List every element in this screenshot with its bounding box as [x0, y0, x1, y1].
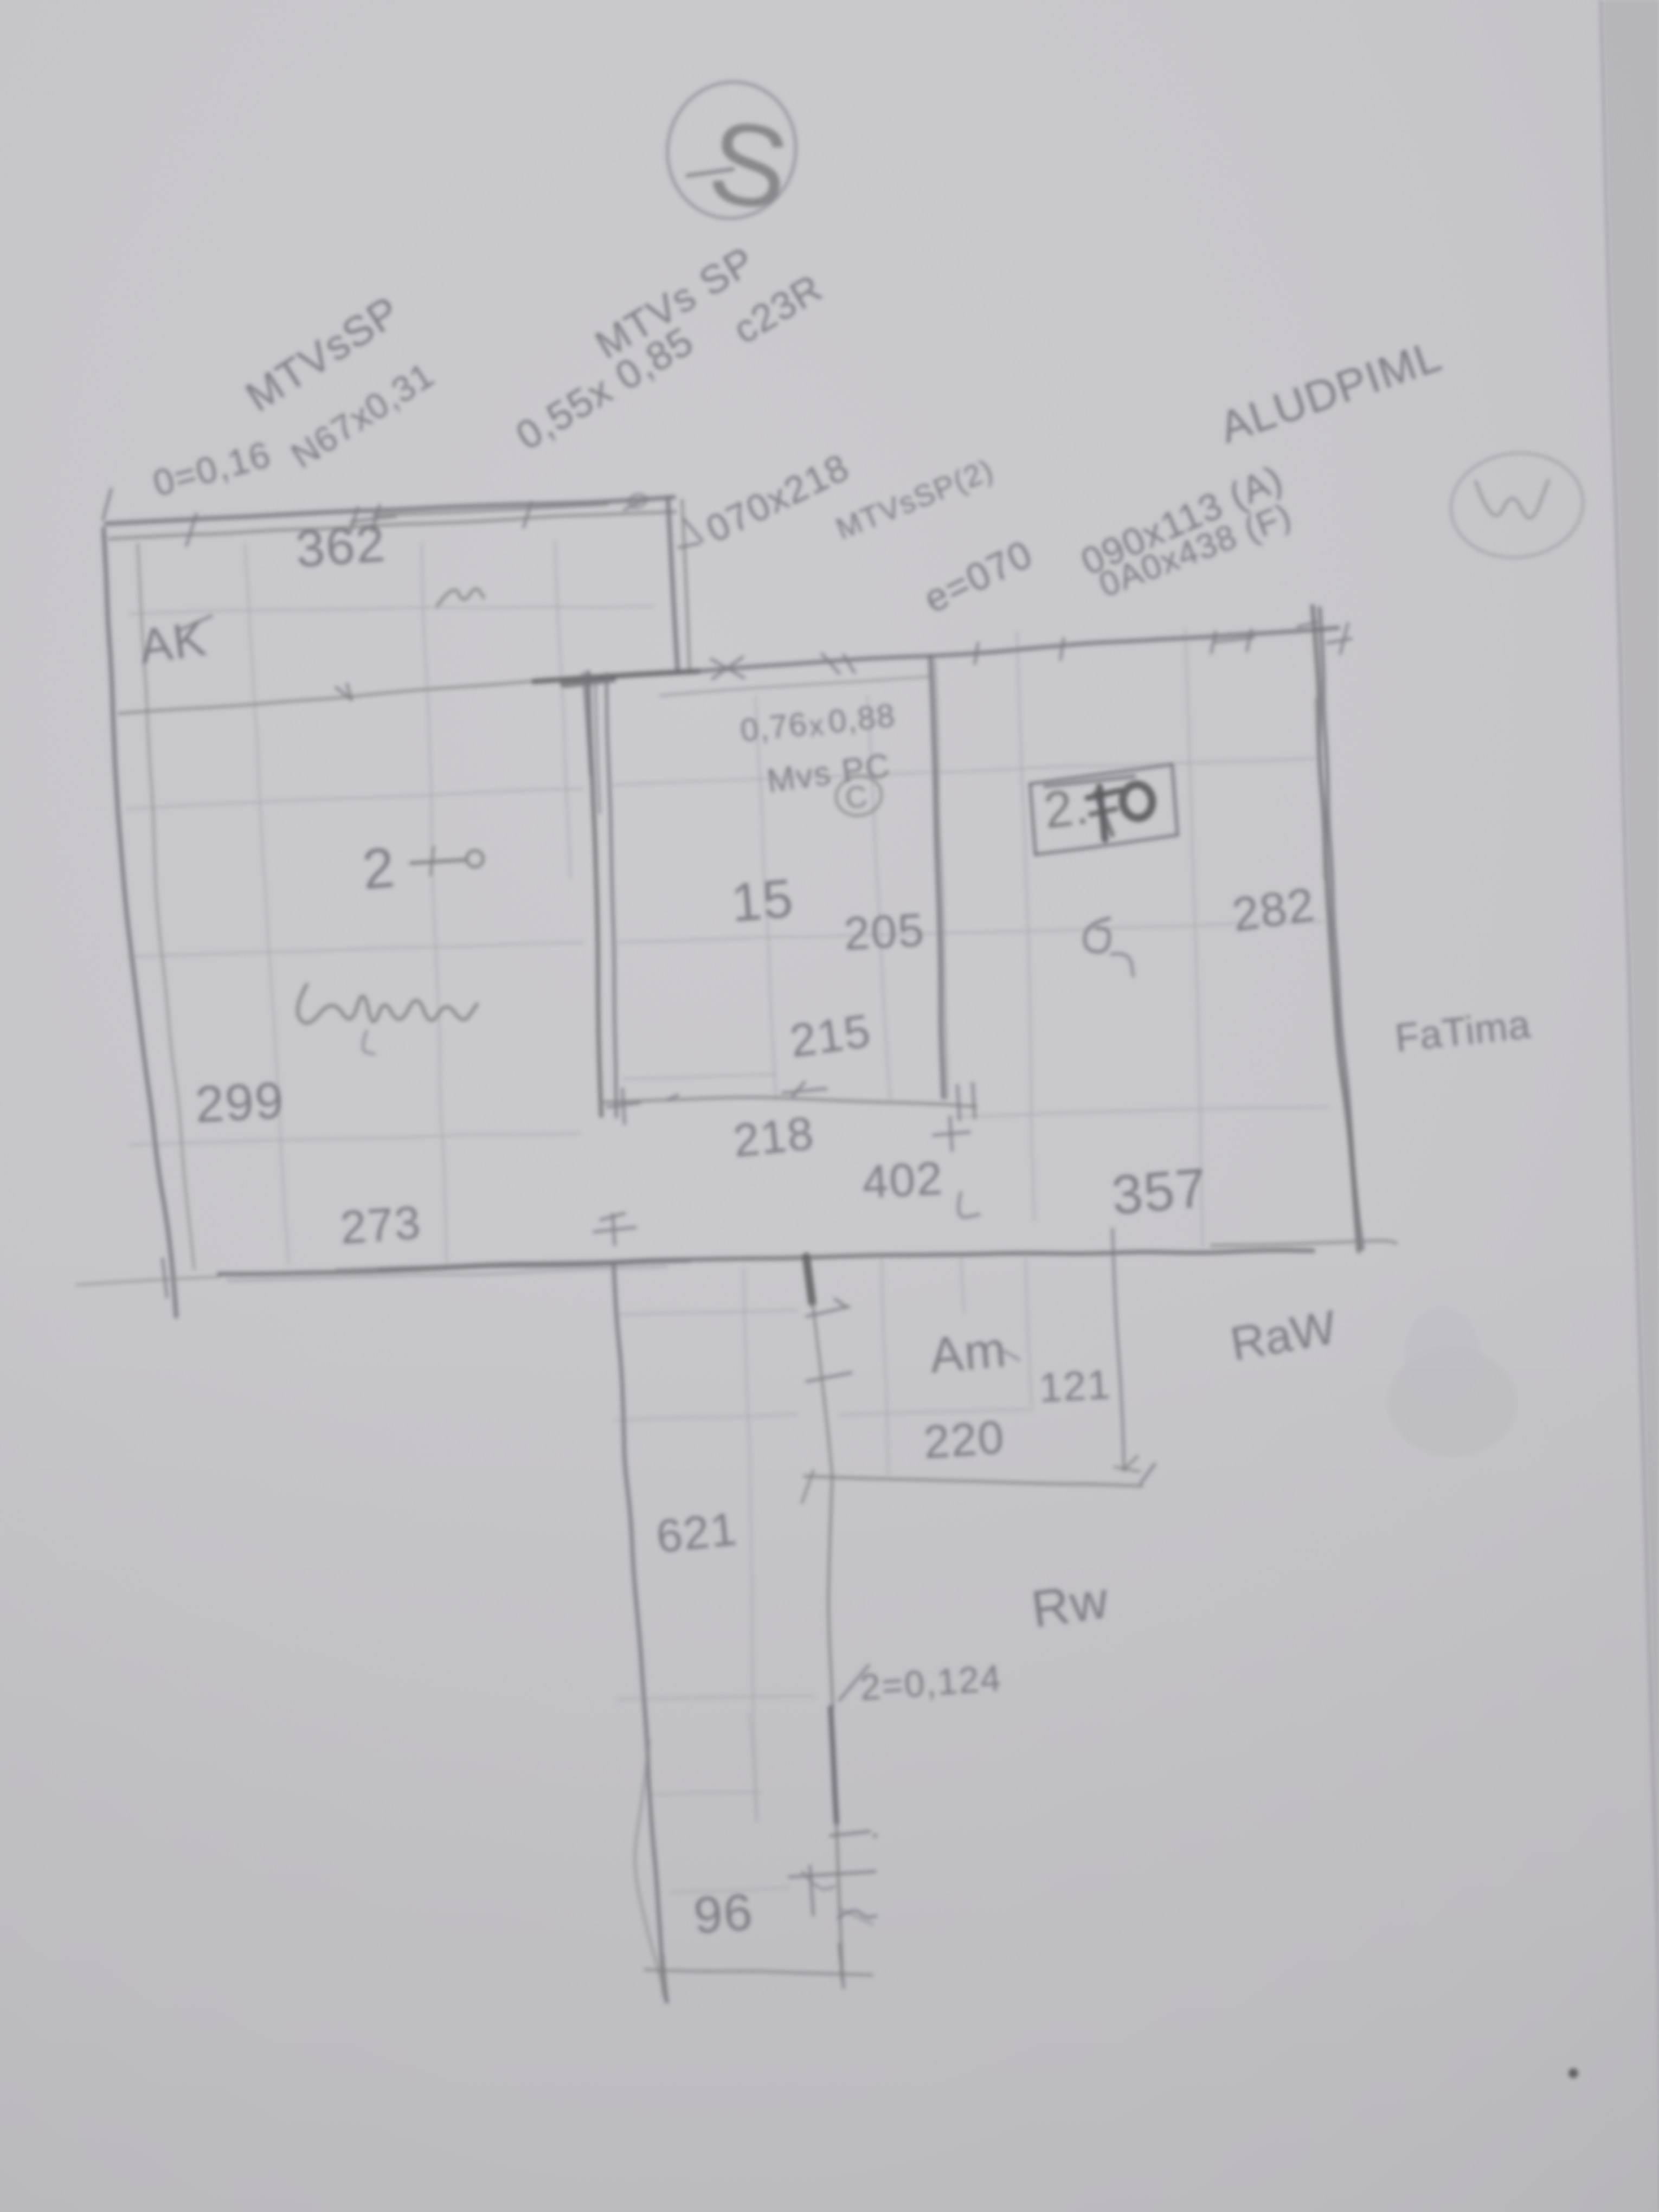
svg-text:299: 299	[194, 1072, 286, 1134]
svg-text:2: 2	[360, 835, 398, 902]
svg-text:15: 15	[729, 867, 796, 934]
svg-text:0,76: 0,76	[738, 705, 809, 749]
svg-text:96: 96	[692, 1883, 755, 1945]
svg-text:0,88: 0,88	[826, 697, 897, 740]
svg-text:220: 220	[922, 1411, 1007, 1469]
svg-text:621: 621	[654, 1503, 740, 1563]
svg-text:Rw: Rw	[1028, 1571, 1113, 1639]
svg-text:218: 218	[731, 1107, 817, 1167]
svg-text:Am: Am	[928, 1322, 1009, 1384]
svg-text:PC: PC	[839, 747, 893, 790]
svg-text:273: 273	[339, 1197, 423, 1254]
svg-text:205: 205	[843, 904, 926, 960]
svg-text:402: 402	[861, 1152, 944, 1208]
svg-text:362: 362	[294, 515, 388, 578]
svg-text:357: 357	[1109, 1156, 1210, 1226]
svg-text:282: 282	[1229, 877, 1319, 942]
svg-text:121: 121	[1038, 1361, 1112, 1411]
